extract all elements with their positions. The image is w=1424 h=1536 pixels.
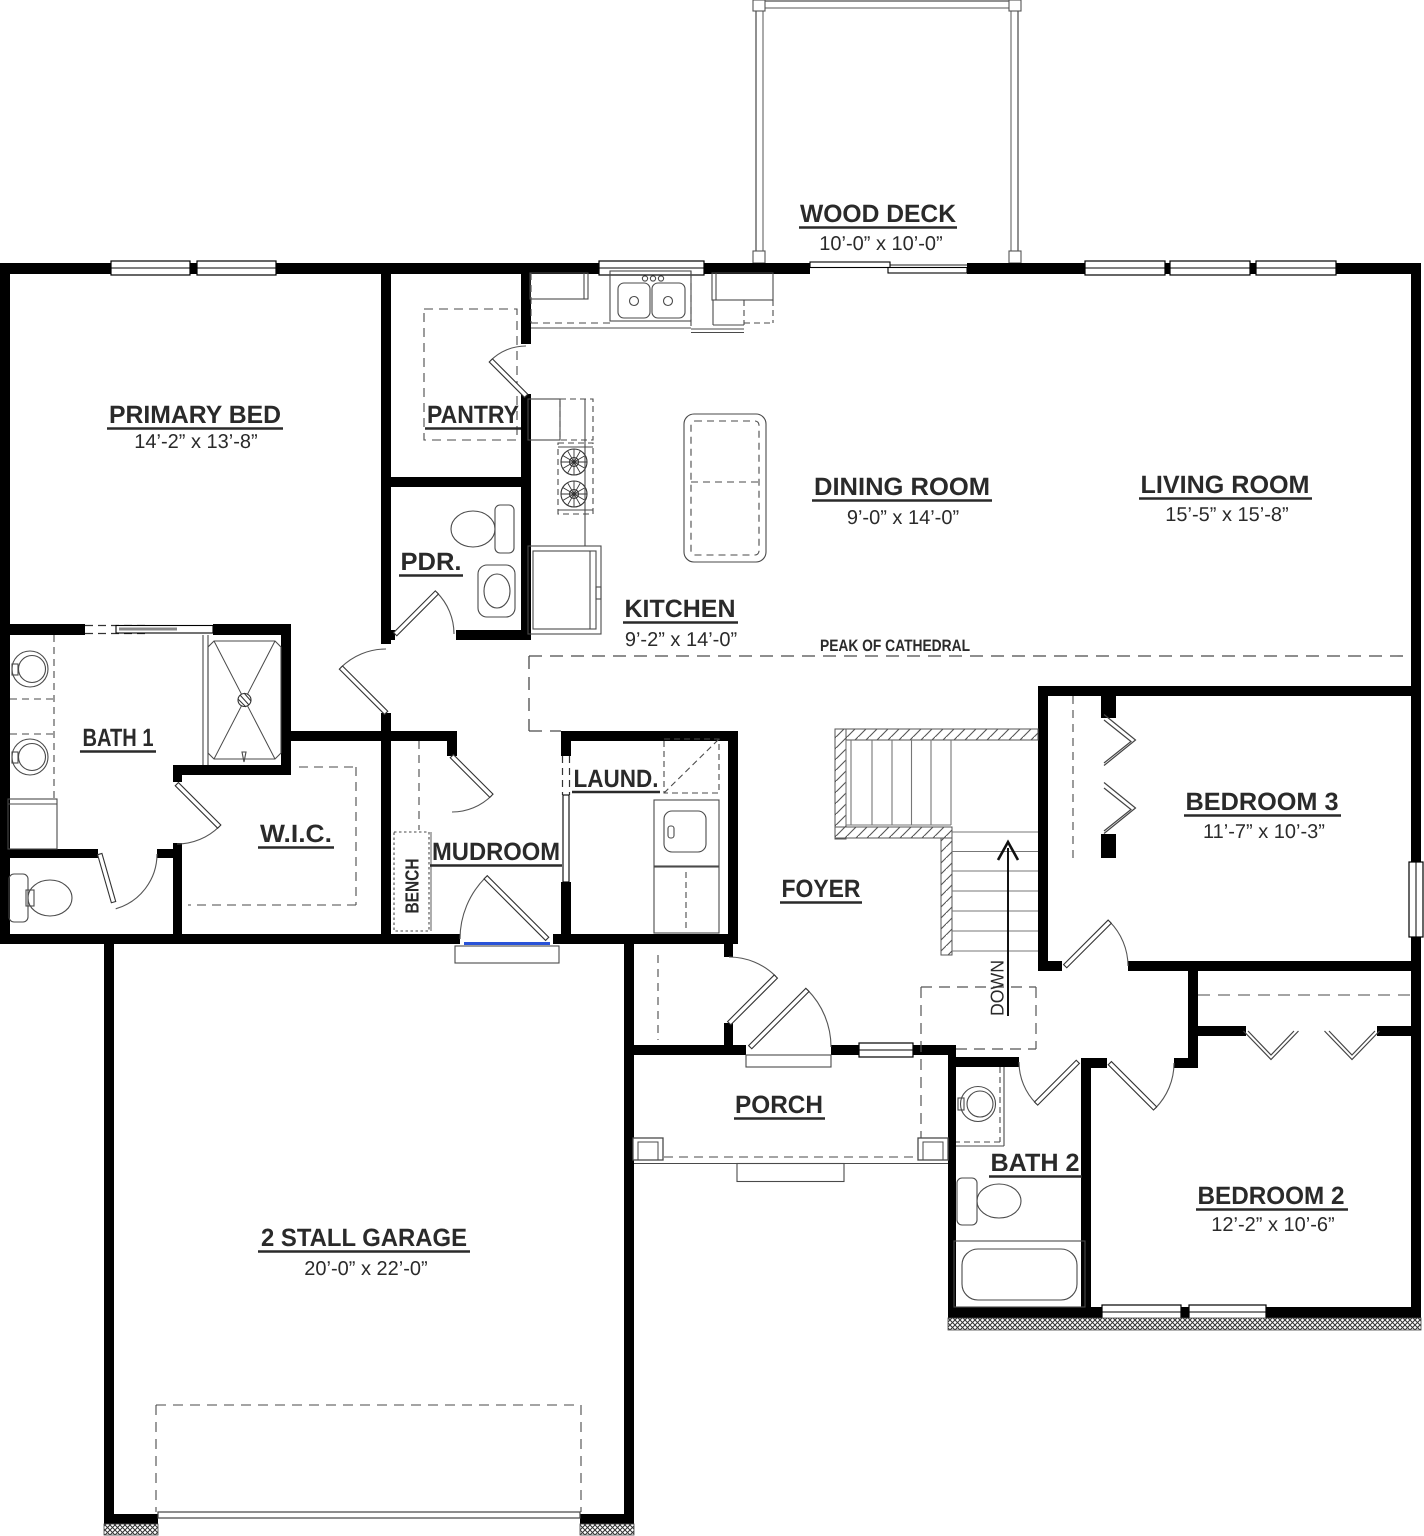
svg-text:WOOD DECK: WOOD DECK — [800, 200, 956, 228]
svg-text:BATH 2: BATH 2 — [991, 1149, 1080, 1177]
svg-text:BENCH: BENCH — [403, 859, 424, 914]
svg-text:KITCHEN: KITCHEN — [625, 595, 736, 623]
svg-text:BEDROOM 3: BEDROOM 3 — [1186, 788, 1339, 816]
svg-text:FOYER: FOYER — [782, 875, 861, 903]
svg-text:12’-2” x 10’-6”: 12’-2” x 10’-6” — [1211, 1214, 1334, 1236]
svg-text:PORCH: PORCH — [735, 1091, 823, 1119]
svg-text:20’-0” x 22’-0”: 20’-0” x 22’-0” — [304, 1258, 427, 1280]
svg-text:PDR.: PDR. — [401, 548, 462, 576]
svg-text:9’-2” x 14’-0”: 9’-2” x 14’-0” — [625, 629, 737, 651]
svg-text:DOWN: DOWN — [987, 960, 1008, 1016]
svg-text:LAUND.: LAUND. — [574, 765, 659, 793]
svg-text:MUDROOM: MUDROOM — [432, 838, 560, 866]
svg-text:DINING ROOM: DINING ROOM — [814, 473, 990, 501]
svg-text:PEAK OF CATHEDRAL: PEAK OF CATHEDRAL — [820, 637, 970, 655]
svg-text:BATH 1: BATH 1 — [83, 724, 154, 752]
svg-text:PANTRY: PANTRY — [427, 401, 519, 429]
svg-text:BEDROOM 2: BEDROOM 2 — [1198, 1182, 1345, 1210]
svg-text:15’-5” x 15’-8”: 15’-5” x 15’-8” — [1165, 504, 1288, 526]
svg-text:14’-2” x 13’-8”: 14’-2” x 13’-8” — [134, 431, 257, 453]
svg-text:11’-7” x 10’-3”: 11’-7” x 10’-3” — [1203, 821, 1325, 843]
svg-text:10’-0” x 10’-0”: 10’-0” x 10’-0” — [819, 233, 942, 255]
svg-text:LIVING ROOM: LIVING ROOM — [1141, 471, 1310, 499]
svg-text:2 STALL GARAGE: 2 STALL GARAGE — [261, 1224, 467, 1252]
svg-text:9’-0” x 14’-0”: 9’-0” x 14’-0” — [847, 507, 959, 529]
svg-text:PRIMARY BED: PRIMARY BED — [109, 401, 281, 429]
svg-text:W.I.C.: W.I.C. — [260, 820, 332, 848]
